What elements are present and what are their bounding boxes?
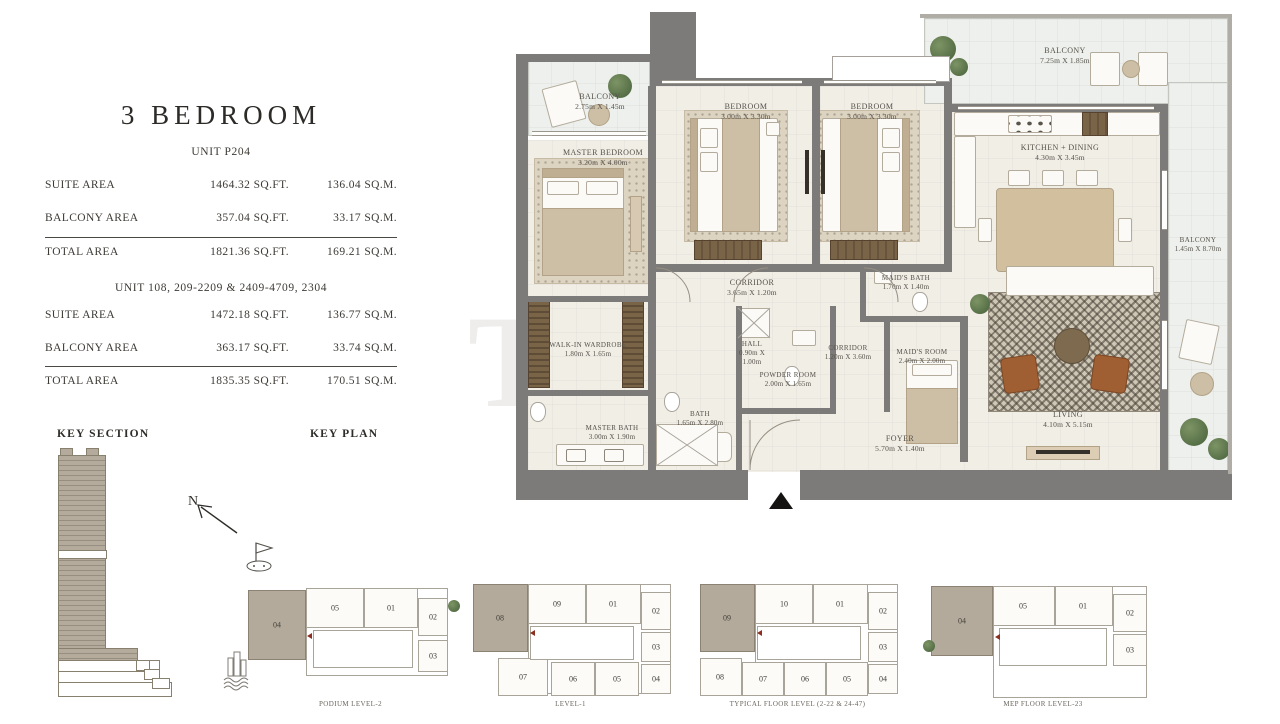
room-dims: 2.00m X 1.65m bbox=[738, 380, 838, 389]
unit-number: 08 bbox=[496, 614, 504, 623]
row-label: BALCONY AREA bbox=[45, 212, 171, 224]
north-arrow-icon bbox=[185, 495, 245, 540]
room-dims: 2.75m X 1.45m bbox=[545, 102, 655, 112]
pillow bbox=[700, 152, 718, 172]
pillow bbox=[700, 128, 718, 148]
window bbox=[1162, 170, 1167, 230]
unit-number: 02 bbox=[1126, 609, 1134, 618]
row-label: SUITE AREA bbox=[45, 179, 171, 191]
tree-icon bbox=[448, 600, 460, 612]
room-label-balcony-top: BALCONY 7.25m X 1.85m bbox=[1010, 46, 1120, 66]
room-dims: 1.80m X 1.65m bbox=[528, 350, 648, 359]
coffee-table bbox=[1054, 328, 1090, 364]
row-sqft: 1821.36 SQ.FT. bbox=[171, 246, 289, 258]
tv bbox=[1036, 450, 1090, 454]
key-plan-mep-floor: 04 05 01 02 03 MEP FLOOR LEVEL-23 bbox=[923, 578, 1163, 708]
parapet bbox=[920, 14, 1232, 18]
wall bbox=[944, 86, 952, 264]
plant-icon bbox=[970, 294, 990, 314]
window bbox=[958, 106, 1154, 110]
unit-number: 09 bbox=[723, 614, 731, 623]
room-name: KITCHEN + DINING bbox=[995, 143, 1125, 153]
row-sqft: 357.04 SQ.FT. bbox=[171, 212, 289, 224]
sink bbox=[604, 449, 624, 462]
wall bbox=[648, 296, 656, 470]
table-row: SUITE AREA 1464.32 SQ.FT. 136.04 SQ.M. bbox=[45, 179, 397, 191]
unit-number: 03 bbox=[1126, 646, 1134, 655]
pillow bbox=[882, 128, 900, 148]
core bbox=[999, 628, 1107, 666]
room-label-bedroom-2: BEDROOM 3.00m X 3.30m bbox=[817, 102, 927, 122]
room-dims: 7.25m X 1.85m bbox=[1010, 56, 1120, 66]
room-name: BALCONY bbox=[545, 92, 655, 102]
armchair bbox=[1000, 354, 1041, 395]
unit-marker bbox=[307, 633, 312, 639]
window bbox=[662, 80, 802, 84]
wall bbox=[516, 54, 528, 480]
unit-number: 04 bbox=[273, 621, 281, 630]
divider bbox=[45, 366, 397, 367]
unit-number: 09 bbox=[553, 600, 561, 609]
wall-shaft bbox=[650, 12, 696, 86]
room-name: MASTER BEDROOM bbox=[543, 148, 663, 158]
room-name: CORRIDOR bbox=[812, 344, 884, 353]
key-plan-level-1: 08 09 01 02 03 04 05 06 07 LEVEL-1 bbox=[468, 578, 673, 708]
unit-marker bbox=[757, 630, 762, 636]
chair bbox=[978, 218, 992, 242]
row-label: SUITE AREA bbox=[45, 309, 171, 321]
room-dims: 1.20m X 3.60m bbox=[812, 353, 884, 362]
unit-number: 01 bbox=[387, 604, 395, 613]
headboard bbox=[690, 118, 698, 232]
wall-niche bbox=[832, 56, 950, 82]
wall bbox=[516, 470, 748, 500]
unit-number: 02 bbox=[652, 607, 660, 616]
toilet bbox=[530, 402, 546, 422]
room-dims: 3.65m X 1.20m bbox=[697, 288, 807, 298]
toilet bbox=[664, 392, 680, 412]
bench bbox=[630, 196, 642, 252]
key-plan-podium-level-2: 04 05 01 02 03 PODIUM LEVEL-2 bbox=[243, 578, 458, 708]
unit-number: 01 bbox=[609, 600, 617, 609]
room-label-living: LIVING 4.10m X 5.15m bbox=[1013, 410, 1123, 430]
unit-number: 04 bbox=[652, 675, 660, 684]
table-row-total: TOTAL AREA 1821.36 SQ.FT. 169.21 SQ.M. bbox=[45, 246, 397, 258]
room-dims: 1.45m X 8.70m bbox=[1158, 245, 1238, 254]
row-sqm: 136.77 SQ.M. bbox=[289, 309, 397, 321]
room-dims: 2.40m X 2.00m bbox=[877, 357, 967, 366]
toilet bbox=[912, 292, 928, 312]
unit-number: 07 bbox=[519, 673, 527, 682]
row-label: BALCONY AREA bbox=[45, 342, 171, 354]
chair bbox=[1008, 170, 1030, 186]
window bbox=[532, 131, 646, 136]
wall bbox=[524, 390, 654, 396]
room-name: WALK-IN WARDROBE bbox=[528, 341, 648, 350]
tree-icon bbox=[923, 640, 935, 652]
unit-number: 01 bbox=[836, 600, 844, 609]
unit-marker bbox=[995, 634, 1000, 640]
room-dims: 3.00m X 3.30m bbox=[817, 112, 927, 122]
kitchen-counter-side bbox=[954, 136, 976, 228]
chair bbox=[1076, 170, 1098, 186]
key-section-label: KEY SECTION bbox=[57, 428, 149, 440]
page-title: 3 BEDROOM bbox=[45, 100, 397, 131]
key-plan-typical-floor: 09 10 01 02 03 04 05 06 07 08 TYPICAL FL… bbox=[695, 578, 900, 708]
room-dims: 3.00m X 3.30m bbox=[691, 112, 801, 122]
key-plan-caption: LEVEL-1 bbox=[468, 700, 673, 708]
room-dims: 3.00m X 1.90m bbox=[562, 433, 662, 442]
unit-number: 04 bbox=[958, 617, 966, 626]
unit-number: 07 bbox=[759, 675, 767, 684]
wall bbox=[516, 54, 650, 62]
room-label-master-bedroom: MASTER BEDROOM 3.20m X 4.00m bbox=[543, 148, 663, 168]
kitchen-counter bbox=[954, 112, 1160, 136]
chair bbox=[1138, 52, 1168, 86]
tower-step bbox=[152, 678, 170, 689]
unit-number: 05 bbox=[331, 604, 339, 613]
sink bbox=[566, 449, 586, 462]
table bbox=[1122, 60, 1140, 78]
pillow bbox=[586, 181, 618, 195]
room-name: MASTER BATH bbox=[562, 424, 662, 433]
room-label-hall: HALL 0.90m X 1.00m bbox=[731, 340, 773, 367]
key-plan-caption: PODIUM LEVEL-2 bbox=[243, 700, 458, 708]
key-plan-label: KEY PLAN bbox=[310, 428, 378, 440]
room-label-powder-room: POWDER ROOM 2.00m X 1.65m bbox=[738, 371, 838, 389]
room-label-maids-bath: MAID'S BATH 1.70m X 1.40m bbox=[861, 274, 951, 292]
room-dims: 3.20m X 4.00m bbox=[543, 158, 663, 168]
wall bbox=[960, 316, 968, 462]
golf-flag-icon bbox=[244, 540, 278, 572]
unit-marker bbox=[530, 630, 535, 636]
room-label-walkin-wardrobe: WALK-IN WARDROBE 1.80m X 1.65m bbox=[528, 341, 648, 359]
chair bbox=[1118, 218, 1132, 242]
armchair bbox=[1090, 354, 1131, 395]
unit-number: 01 bbox=[1079, 602, 1087, 611]
blanket bbox=[542, 208, 624, 276]
wall bbox=[884, 322, 890, 412]
shaft-box bbox=[656, 424, 718, 466]
wall bbox=[800, 470, 1232, 500]
headboard bbox=[902, 118, 910, 232]
pillow bbox=[547, 181, 579, 195]
window bbox=[1162, 320, 1167, 390]
row-sqft: 1835.35 SQ.FT. bbox=[171, 375, 289, 387]
room-name: BEDROOM bbox=[691, 102, 801, 112]
row-sqft: 1472.18 SQ.FT. bbox=[171, 309, 289, 321]
room-dims: 1.65m X 2.80m bbox=[655, 419, 745, 428]
wall bbox=[860, 264, 866, 322]
wall bbox=[860, 316, 968, 322]
room-name: MAID'S ROOM bbox=[877, 348, 967, 357]
row-sqft: 363.17 SQ.FT. bbox=[171, 342, 289, 354]
wall bbox=[652, 264, 952, 272]
wall bbox=[742, 408, 836, 414]
row-sqm: 169.21 SQ.M. bbox=[289, 246, 397, 258]
row-sqm: 33.17 SQ.M. bbox=[289, 212, 397, 224]
core bbox=[757, 626, 861, 660]
kitchen-cabinet bbox=[1082, 112, 1108, 136]
room-dims: 4.30m X 3.45m bbox=[995, 153, 1125, 163]
room-name: LIVING bbox=[1013, 410, 1123, 420]
unit-number: 05 bbox=[613, 675, 621, 684]
stove bbox=[1008, 115, 1052, 133]
room-name: HALL bbox=[731, 340, 773, 349]
plant-icon bbox=[1180, 418, 1208, 446]
unit-number: 03 bbox=[879, 643, 887, 652]
blanket bbox=[840, 118, 878, 232]
room-label-corridor-1: CORRIDOR 3.65m X 1.20m bbox=[697, 278, 807, 298]
unit-header-2: UNIT 108, 209-2209 & 2409-4709, 2304 bbox=[45, 282, 397, 294]
room-name: BEDROOM bbox=[817, 102, 927, 112]
unit-number: 03 bbox=[652, 643, 660, 652]
divider bbox=[45, 237, 397, 238]
table bbox=[1190, 372, 1214, 396]
plant-icon bbox=[950, 58, 968, 76]
room-name: POWDER ROOM bbox=[738, 371, 838, 380]
table-row-total: TOTAL AREA 1835.35 SQ.FT. 170.51 SQ.M. bbox=[45, 375, 397, 387]
room-label-bath: BATH 1.65m X 2.80m bbox=[655, 410, 745, 428]
tv-panel bbox=[821, 150, 825, 194]
row-label: TOTAL AREA bbox=[45, 246, 171, 258]
wall bbox=[1160, 104, 1168, 472]
row-sqm: 136.04 SQ.M. bbox=[289, 179, 397, 191]
unit-number: 02 bbox=[879, 607, 887, 616]
row-sqm: 170.51 SQ.M. bbox=[289, 375, 397, 387]
unit-number: 05 bbox=[1019, 602, 1027, 611]
unit-number: 06 bbox=[801, 675, 809, 684]
blanket bbox=[722, 118, 760, 232]
row-label: TOTAL AREA bbox=[45, 375, 171, 387]
hall-closet bbox=[738, 308, 770, 338]
unit-number: 06 bbox=[569, 675, 577, 684]
side-table bbox=[766, 122, 780, 136]
room-label-foyer: FOYER 5.70m X 1.40m bbox=[845, 434, 955, 454]
room-label-bedroom-1: BEDROOM 3.00m X 3.30m bbox=[691, 102, 801, 122]
core bbox=[530, 626, 634, 660]
table-row: BALCONY AREA 363.17 SQ.FT. 33.74 SQ.M. bbox=[45, 342, 397, 354]
unit-number: 10 bbox=[780, 600, 788, 609]
wall bbox=[524, 296, 654, 302]
window bbox=[824, 80, 936, 84]
room-name: BALCONY bbox=[1158, 236, 1238, 245]
room-label-balcony-side: BALCONY 1.45m X 8.70m bbox=[1158, 236, 1238, 254]
unit-header-1: UNIT P204 bbox=[45, 146, 397, 158]
room-label-balcony-master: BALCONY 2.75m X 1.45m bbox=[545, 92, 655, 112]
room-label-maids-room: MAID'S ROOM 2.40m X 2.00m bbox=[877, 348, 967, 366]
table-row: BALCONY AREA 357.04 SQ.FT. 33.17 SQ.M. bbox=[45, 212, 397, 224]
room-name: CORRIDOR bbox=[697, 278, 807, 288]
room-name: BATH bbox=[655, 410, 745, 419]
unit-number: 05 bbox=[843, 675, 851, 684]
room-dims: 4.10m X 5.15m bbox=[1013, 420, 1123, 430]
row-sqm: 33.74 SQ.M. bbox=[289, 342, 397, 354]
unit-number: 04 bbox=[879, 675, 887, 684]
dining-table bbox=[996, 188, 1114, 272]
table-row: SUITE AREA 1472.18 SQ.FT. 136.77 SQ.M. bbox=[45, 309, 397, 321]
wardrobe bbox=[830, 240, 898, 260]
entry-marker bbox=[769, 492, 793, 509]
room-name: FOYER bbox=[845, 434, 955, 444]
row-sqft: 1464.32 SQ.FT. bbox=[171, 179, 289, 191]
pillow bbox=[882, 152, 900, 172]
unit-number: 02 bbox=[429, 613, 437, 622]
room-dims: 5.70m X 1.40m bbox=[845, 444, 955, 454]
room-dims: 1.70m X 1.40m bbox=[861, 283, 951, 292]
room-name: MAID'S BATH bbox=[861, 274, 951, 283]
side-balcony bbox=[1168, 82, 1228, 472]
unit-number: 08 bbox=[716, 673, 724, 682]
tower-mep-band bbox=[58, 550, 107, 559]
chair bbox=[1042, 170, 1064, 186]
floorplan-brochure-page: T 3 BEDROOM UNIT P204 SUITE AREA 1464.32… bbox=[0, 0, 1280, 724]
sofa bbox=[1006, 266, 1154, 296]
wardrobe bbox=[694, 240, 762, 260]
plant-icon bbox=[1208, 438, 1230, 460]
tv-panel bbox=[805, 150, 809, 194]
room-name: BALCONY bbox=[1010, 46, 1120, 56]
room-label-master-bath: MASTER BATH 3.00m X 1.90m bbox=[562, 424, 662, 442]
headboard bbox=[542, 168, 624, 178]
room-label-kitchen-dining: KITCHEN + DINING 4.30m X 3.45m bbox=[995, 143, 1125, 163]
core bbox=[313, 630, 413, 668]
key-plan-caption: MEP FLOOR LEVEL-23 bbox=[923, 700, 1163, 708]
room-label-corridor-2: CORRIDOR 1.20m X 3.60m bbox=[812, 344, 884, 362]
key-plan-caption: TYPICAL FLOOR LEVEL (2-22 & 24-47) bbox=[695, 700, 900, 708]
unit-number: 03 bbox=[429, 652, 437, 661]
room-dims: 0.90m X 1.00m bbox=[731, 349, 773, 367]
